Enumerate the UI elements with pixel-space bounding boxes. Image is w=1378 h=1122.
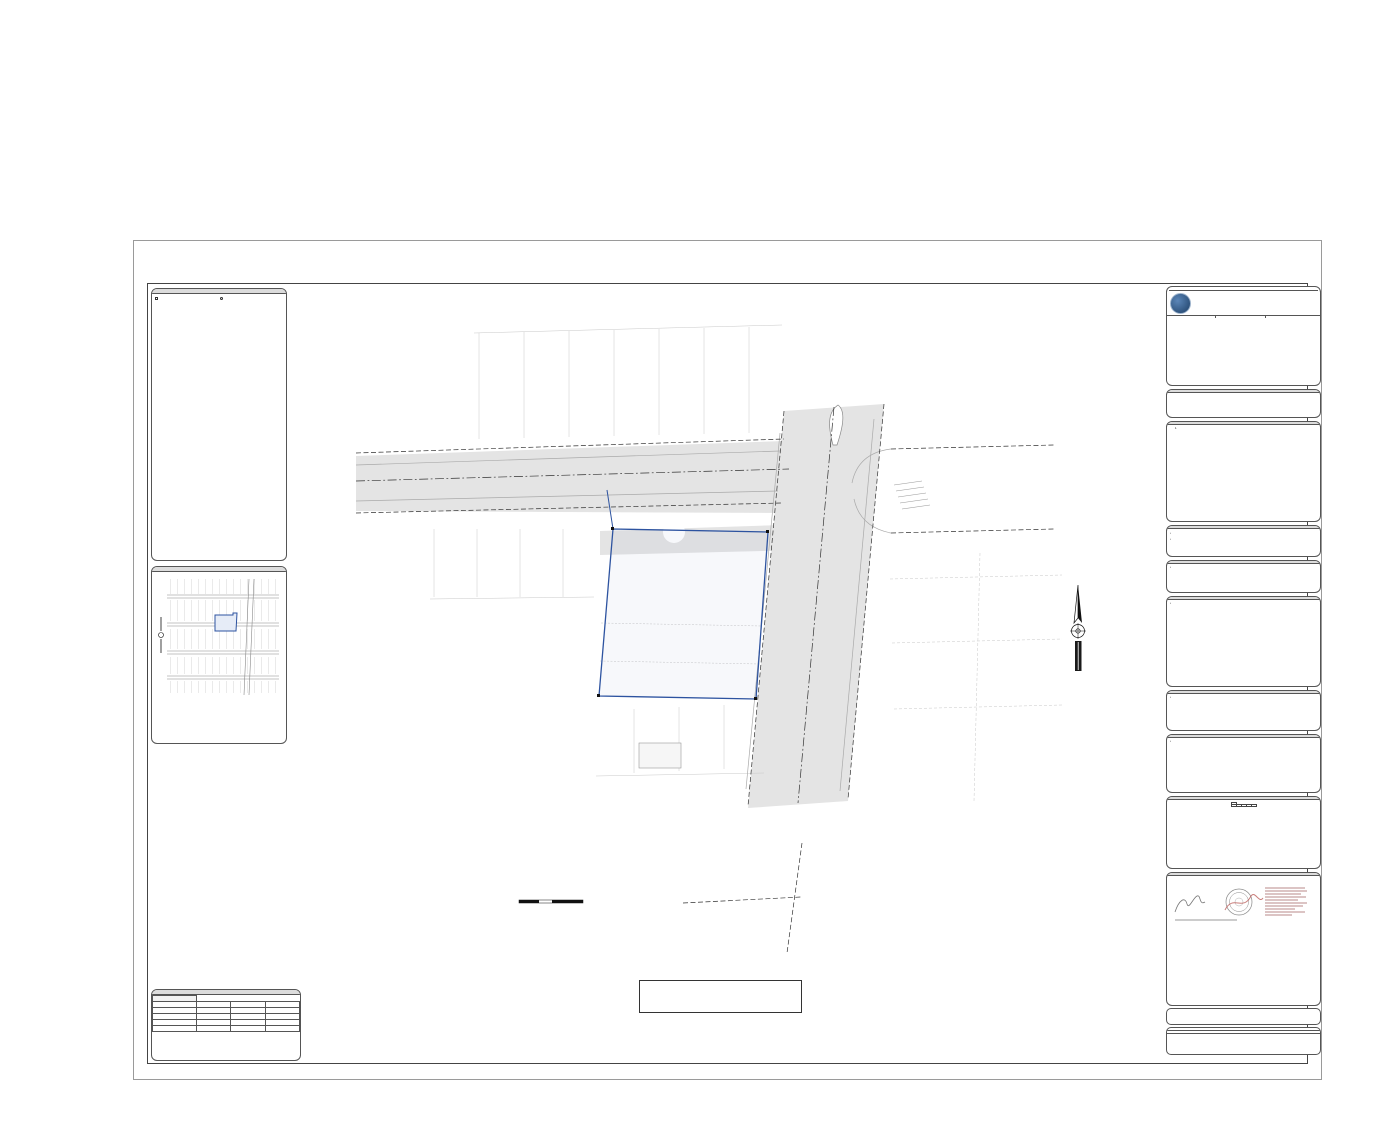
revisions-table <box>152 995 300 1032</box>
legend-item <box>219 296 284 301</box>
north-arrow <box>1070 585 1086 671</box>
graphic-scale <box>519 900 583 903</box>
legal-description-body <box>1167 393 1320 397</box>
crosswalk-hatch <box>894 481 930 509</box>
seal-red-signature <box>1225 894 1263 910</box>
legal-description-panel <box>1166 389 1321 418</box>
electronic-seal-note <box>1166 1008 1321 1025</box>
surveyors-notes-list <box>1170 427 1317 430</box>
tree-tabulation-title <box>1167 797 1320 800</box>
certification-panel <box>1166 872 1321 1006</box>
firm-title-block <box>1166 286 1321 386</box>
location-map-panel <box>151 566 287 744</box>
survey-sheet-image[interactable]: • • • • • <box>133 240 1322 1080</box>
tree-row <box>1231 805 1256 807</box>
tree-table <box>1231 802 1257 807</box>
legend-list <box>152 294 286 303</box>
folio-label <box>1173 537 1215 541</box>
surveyor-seal-icon <box>1226 889 1252 915</box>
location-map <box>153 573 285 705</box>
map-north-arrow <box>159 617 164 653</box>
legend-panel <box>151 288 287 561</box>
property-address-label <box>1173 531 1215 535</box>
sheet-footer <box>1166 1027 1321 1055</box>
property-info-panel: • • <box>1166 525 1321 557</box>
digital-signature-block <box>1265 888 1307 915</box>
map-subject-parcel <box>215 613 237 631</box>
flood-zone-panel: • <box>1166 690 1321 731</box>
subject-parcel-boundary <box>597 490 769 700</box>
revisions-panel <box>151 989 301 1061</box>
firm-credits <box>1167 315 1320 318</box>
sheet-number <box>1167 1034 1320 1036</box>
survey-drawing <box>134 241 1323 1081</box>
datum-benchmarks-panel: • <box>1166 596 1321 687</box>
location-map-title <box>152 567 286 572</box>
datum-item: • <box>1170 602 1317 605</box>
firm-logo <box>1170 293 1191 314</box>
surveyor-note <box>1178 427 1317 430</box>
certify-to-item: • <box>1170 566 1317 569</box>
encroachment-item: • <box>1170 740 1317 743</box>
certify-to-panel: • <box>1166 560 1321 593</box>
tree-tabulation-panel <box>1166 796 1321 869</box>
datum-conversion-box <box>639 980 802 1013</box>
flood-zone-item: • <box>1170 696 1317 699</box>
building-footprint <box>639 743 681 768</box>
legend-item <box>154 296 219 301</box>
signature-seal-area <box>1167 882 1316 926</box>
signer-block <box>1167 926 1320 928</box>
signature-scribble <box>1175 896 1205 912</box>
encroachments-panel: • <box>1166 734 1321 793</box>
legend-symbol-icon <box>220 297 223 300</box>
listing-page: • • • • • <box>0 0 1378 1122</box>
legend-symbol-icon <box>155 297 158 300</box>
surveyors-notes-panel <box>1166 421 1321 522</box>
